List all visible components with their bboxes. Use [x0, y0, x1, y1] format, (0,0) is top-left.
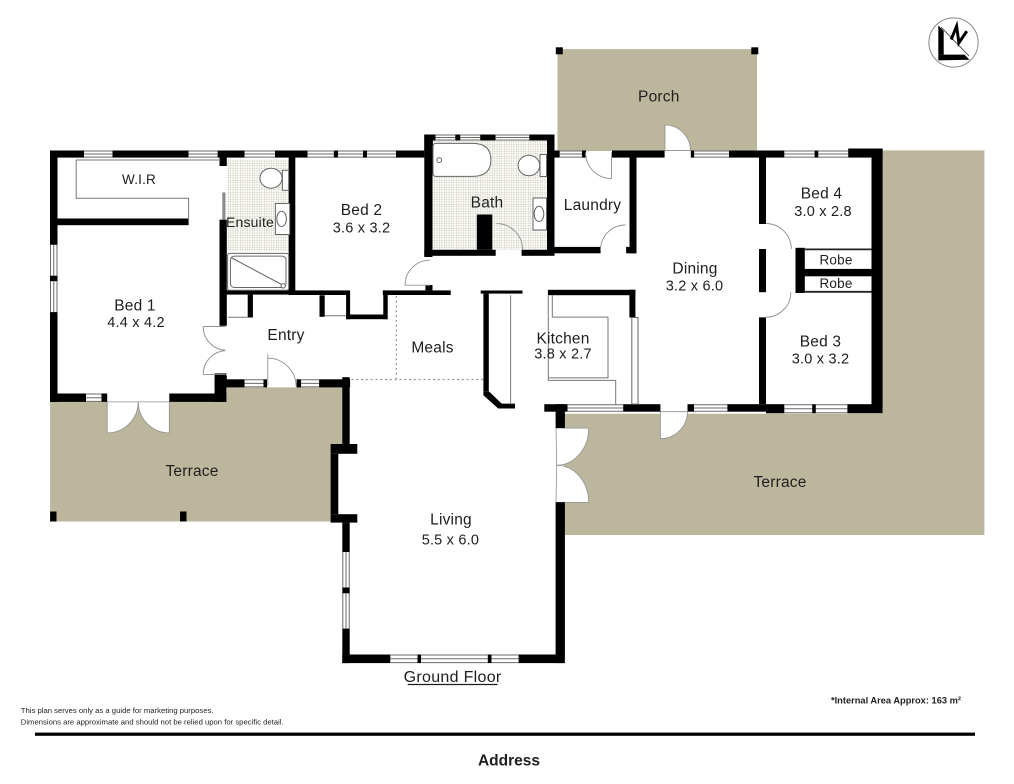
svg-text:Porch: Porch [638, 89, 680, 106]
svg-text:3.6 x 3.2: 3.6 x 3.2 [333, 221, 390, 237]
svg-text:3.8 x 2.7: 3.8 x 2.7 [534, 347, 591, 363]
svg-text:Kitchen: Kitchen [536, 331, 589, 348]
svg-text:Terrace: Terrace [753, 474, 806, 491]
svg-text:Address: Address [478, 753, 540, 770]
svg-text:3.0 x 3.2: 3.0 x 3.2 [792, 352, 849, 368]
svg-text:W.I.R: W.I.R [122, 172, 156, 187]
svg-text:Bed 4: Bed 4 [801, 186, 843, 203]
svg-text:Bed 1: Bed 1 [114, 298, 156, 315]
svg-text:Bath: Bath [471, 195, 504, 212]
svg-text:4.4 x 4.2: 4.4 x 4.2 [107, 315, 164, 331]
svg-text:5.5 x 6.0: 5.5 x 6.0 [422, 533, 479, 549]
svg-text:Meals: Meals [411, 340, 453, 357]
svg-text:Bed 2: Bed 2 [341, 202, 383, 219]
svg-text:Robe: Robe [819, 276, 852, 291]
svg-text:This plan serves only as a gui: This plan serves only as a guide for mar… [21, 706, 214, 715]
svg-text:Robe: Robe [819, 253, 852, 268]
svg-text:Ground Floor: Ground Floor [404, 669, 502, 686]
svg-text:Laundry: Laundry [564, 197, 621, 214]
svg-text:Dimensions are approximate and: Dimensions are approximate and should no… [21, 718, 284, 727]
svg-text:3.2 x 6.0: 3.2 x 6.0 [666, 279, 723, 295]
svg-text:*Internal Area Approx: 163 m²: *Internal Area Approx: 163 m² [831, 696, 961, 706]
svg-text:Dining: Dining [672, 261, 717, 278]
svg-text:Living: Living [430, 512, 472, 529]
svg-text:Terrace: Terrace [165, 463, 218, 480]
svg-text:Entry: Entry [267, 327, 304, 344]
svg-text:Bed 3: Bed 3 [800, 334, 842, 351]
svg-text:3.0 x 2.8: 3.0 x 2.8 [794, 204, 851, 220]
svg-text:Ensuite: Ensuite [226, 214, 274, 230]
